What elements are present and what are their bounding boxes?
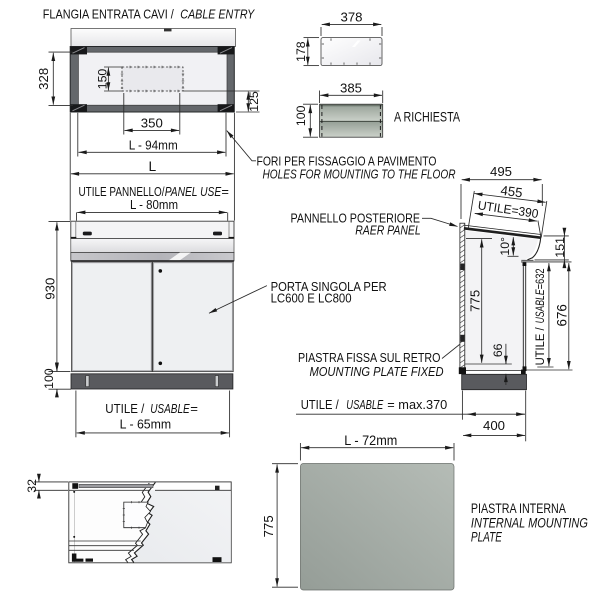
svg-text:328: 328 [36,68,51,90]
svg-text:=: = [190,401,198,416]
svg-text:66: 66 [491,343,505,357]
svg-text:L - 72mm: L - 72mm [344,433,397,448]
svg-text:A RICHIESTA: A RICHIESTA [394,109,460,124]
svg-text:32: 32 [25,479,39,493]
svg-text:495: 495 [490,164,512,179]
svg-text:INTERNAL MOUNTING: INTERNAL MOUNTING [471,515,588,530]
svg-text:MOUNTING PLATE FIXED: MOUNTING PLATE FIXED [310,364,444,379]
svg-text:UTILE /: UTILE / [301,397,339,412]
svg-text:CABLE ENTRY: CABLE ENTRY [180,7,255,22]
svg-text:USABLE: USABLE [150,401,190,416]
svg-text:350: 350 [141,115,163,130]
svg-text:930: 930 [43,278,58,300]
svg-text:=: = [221,184,229,199]
svg-text:UTILE /: UTILE / [105,401,144,416]
svg-text:400: 400 [483,418,505,433]
svg-text:775: 775 [468,290,483,312]
svg-text:378: 378 [340,9,362,24]
svg-text:PIASTRA INTERNA: PIASTRA INTERNA [471,501,566,516]
svg-text:455: 455 [500,183,524,201]
svg-text:775: 775 [261,515,276,537]
svg-text:125: 125 [247,91,261,112]
svg-text:100: 100 [42,368,56,389]
svg-text:USABLE: USABLE [346,397,383,412]
svg-text:676: 676 [555,304,570,326]
svg-text:151: 151 [553,237,567,258]
svg-text:178: 178 [294,41,308,62]
svg-text:10°: 10° [498,237,512,256]
svg-text:= max.370: = max.370 [387,397,447,412]
svg-text:FLANGIA ENTRATA CAVI /: FLANGIA ENTRATA CAVI / [43,7,174,22]
svg-text:L - 80mm: L - 80mm [130,197,178,212]
svg-text:PLATE: PLATE [471,530,503,545]
svg-text:L - 94mm: L - 94mm [129,137,178,152]
svg-text:L: L [149,159,157,174]
svg-text:150: 150 [96,69,110,90]
svg-text:UTILE /: UTILE / [533,327,547,366]
svg-text:PIASTRA FISSA SUL RETRO: PIASTRA FISSA SUL RETRO [298,350,441,365]
svg-text:LC600 E LC800: LC600 E LC800 [271,291,352,306]
svg-text:L - 65mm: L - 65mm [120,416,172,431]
svg-text:HOLES FOR MOUNTING TO THE FLOO: HOLES FOR MOUNTING TO THE FLOOR [263,167,456,182]
svg-text:385: 385 [340,80,362,95]
svg-text:RAER PANEL: RAER PANEL [355,222,421,237]
svg-text:100: 100 [294,105,308,126]
svg-text:=632: =632 [533,268,547,289]
svg-text:USABLE: USABLE [533,289,547,324]
